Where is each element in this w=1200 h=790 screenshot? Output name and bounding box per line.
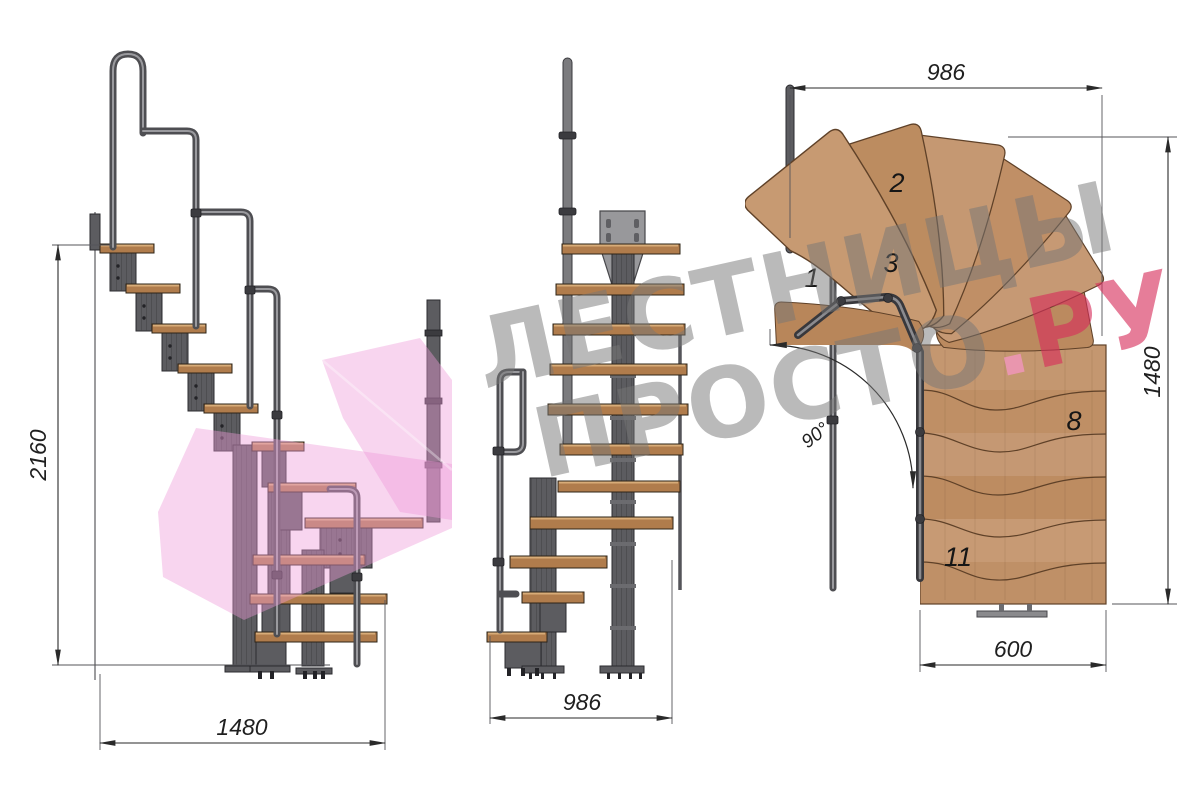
front-base-plates: [507, 666, 644, 679]
dim-side-width: 1480: [216, 714, 267, 740]
dim-plan-bottom: 600: [994, 636, 1033, 662]
plan-view: 1 2 3 8 11: [741, 117, 1110, 617]
step-label-11: 11: [944, 542, 972, 572]
angle-arc: [770, 345, 913, 488]
step-label-2: 2: [888, 168, 904, 198]
staircase-drawing-page: 2160 1480: [0, 0, 1200, 790]
technical-drawing-canvas: 2160 1480: [0, 0, 1200, 790]
front-treads: [487, 244, 688, 668]
dim-plan-right: 1480: [1139, 346, 1165, 397]
dim-front-width: 986: [563, 689, 602, 715]
step-label-1: 1: [804, 263, 819, 293]
side-upper-flight: [100, 244, 258, 451]
step-label-8: 8: [1066, 406, 1081, 436]
wall-mount-bracket: [977, 604, 1047, 617]
front-elevation-view: [487, 58, 838, 679]
plan-wood-treads: [741, 117, 1110, 604]
front-left-handrail: [493, 372, 523, 630]
step-label-3: 3: [883, 248, 898, 278]
dim-side-height: 2160: [25, 429, 51, 481]
dim-plan-top: 986: [927, 59, 966, 85]
